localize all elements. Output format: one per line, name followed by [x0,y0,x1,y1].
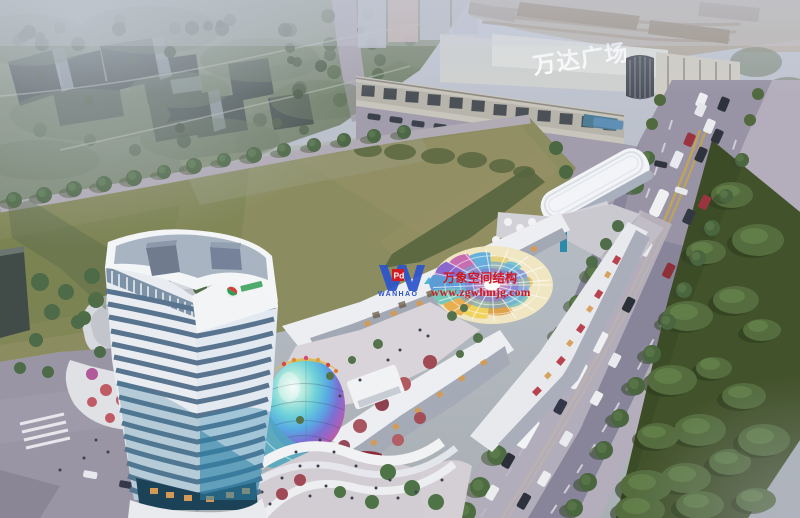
svg-text:www.zgwhmjg.com: www.zgwhmjg.com [431,287,531,299]
svg-text:WANHAO: WANHAO [378,291,418,298]
svg-text:万象空间结构: 万象空间结构 [442,270,517,285]
svg-text:Pd: Pd [394,271,405,281]
